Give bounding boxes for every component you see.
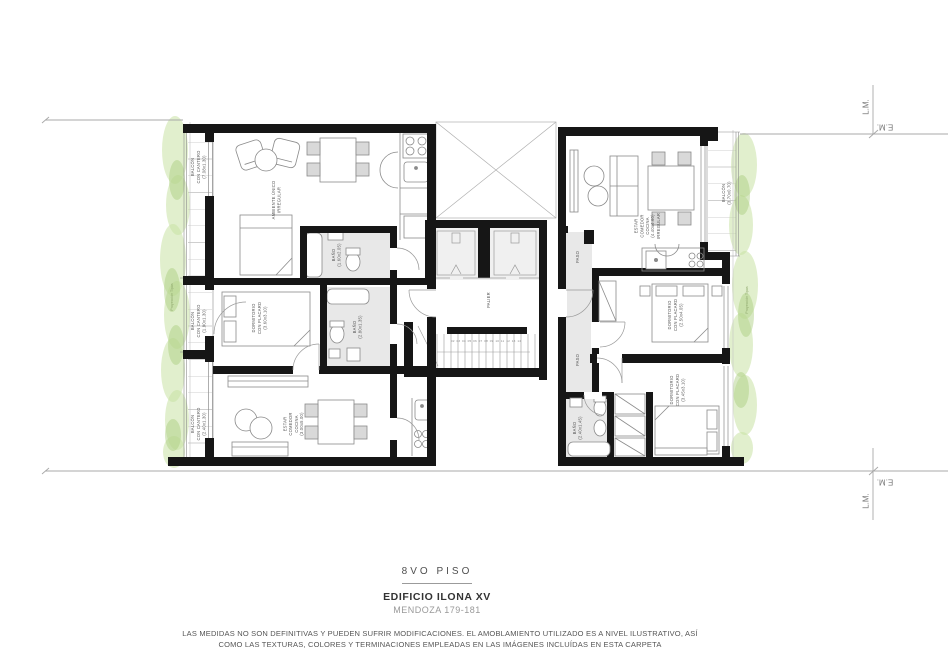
label-bath-right: BAÑO (2.40x1.45) — [572, 416, 583, 439]
floorplan-drawing — [0, 0, 948, 560]
building-address: MENDOZA 179-181 — [177, 605, 697, 615]
label-paso-mid: PASO — [575, 354, 581, 366]
title-divider — [402, 583, 472, 584]
label-trees-left: Proyección Tipas — [170, 283, 174, 310]
vegetation-right — [729, 130, 758, 466]
label-bath-mid-left: BAÑO (2.80x1.35) — [352, 315, 363, 338]
disclaimer-text: LAS MEDIDAS NO SON DEFINITIVAS Y PUEDEN … — [60, 628, 820, 651]
label-balcony-right: BALCÓN (3.70x0.70) — [721, 181, 732, 204]
floor-title: 8VO PISO — [177, 566, 697, 577]
label-estar-left: ESTAR COMEDOR COCINA (3.00x5.00) — [283, 412, 305, 435]
furniture-right-bedroom-bottom — [615, 394, 719, 456]
furniture-left-estar — [232, 398, 430, 456]
floorplan-page: BALCÓN CON CANTERO (7.08x1.30) BALCÓN CO… — [0, 0, 948, 670]
label-estar-right: ESTAR COMEDOR COCINA (4.40x4.60) IRREGUL… — [634, 213, 662, 239]
title-block: 8VO PISO EDIFICIO ILONA XV MENDOZA 179-1… — [177, 566, 697, 615]
label-bedroom-bottom-right: DORMITORIO CON PLACARD (3.45x3.10) — [670, 374, 687, 406]
label-bedroom-top-right: DORMITORIO CON PLACARD (2.50x4.05) — [668, 299, 685, 331]
label-bath-top-left: BAÑO (1.60x2.05) — [331, 243, 342, 266]
label-bedroom-left: DORMITORIO CON PLACARD (3.60x3.10) — [252, 302, 269, 334]
marker-lm-bottom: L.M. — [862, 493, 871, 509]
furniture-right-bedroom-top — [599, 281, 722, 342]
label-balcony-top-left: BALCÓN CON CANTERO (7.08x1.30) — [191, 150, 208, 183]
marker-em-top: E.M. — [877, 123, 893, 132]
label-palier: PALIER — [486, 292, 492, 308]
marker-lm-top: L.M. — [862, 99, 871, 115]
stair-step-numbers: 02 03 04 05 06 07 08 09 10 11 12 13 14 — [451, 339, 521, 342]
label-trees-right: Proyección Tipas — [745, 286, 749, 313]
label-paso-top: PASO — [575, 251, 581, 263]
building-name: EDIFICIO ILONA XV — [177, 591, 697, 603]
label-balcony-mid-left: BALCÓN CON CANTERO (1.90x1.30) — [191, 304, 208, 337]
label-balcony-bottom-left: BALCÓN CON CANTERO (2.40x1.30) — [191, 407, 208, 440]
marker-em-bottom: E.M. — [877, 478, 893, 487]
label-ambiente-unico: AMBIENTE ÚNICO IRREGULAR — [271, 181, 282, 220]
vegetation-left — [160, 116, 190, 468]
air-light-void — [436, 122, 556, 218]
